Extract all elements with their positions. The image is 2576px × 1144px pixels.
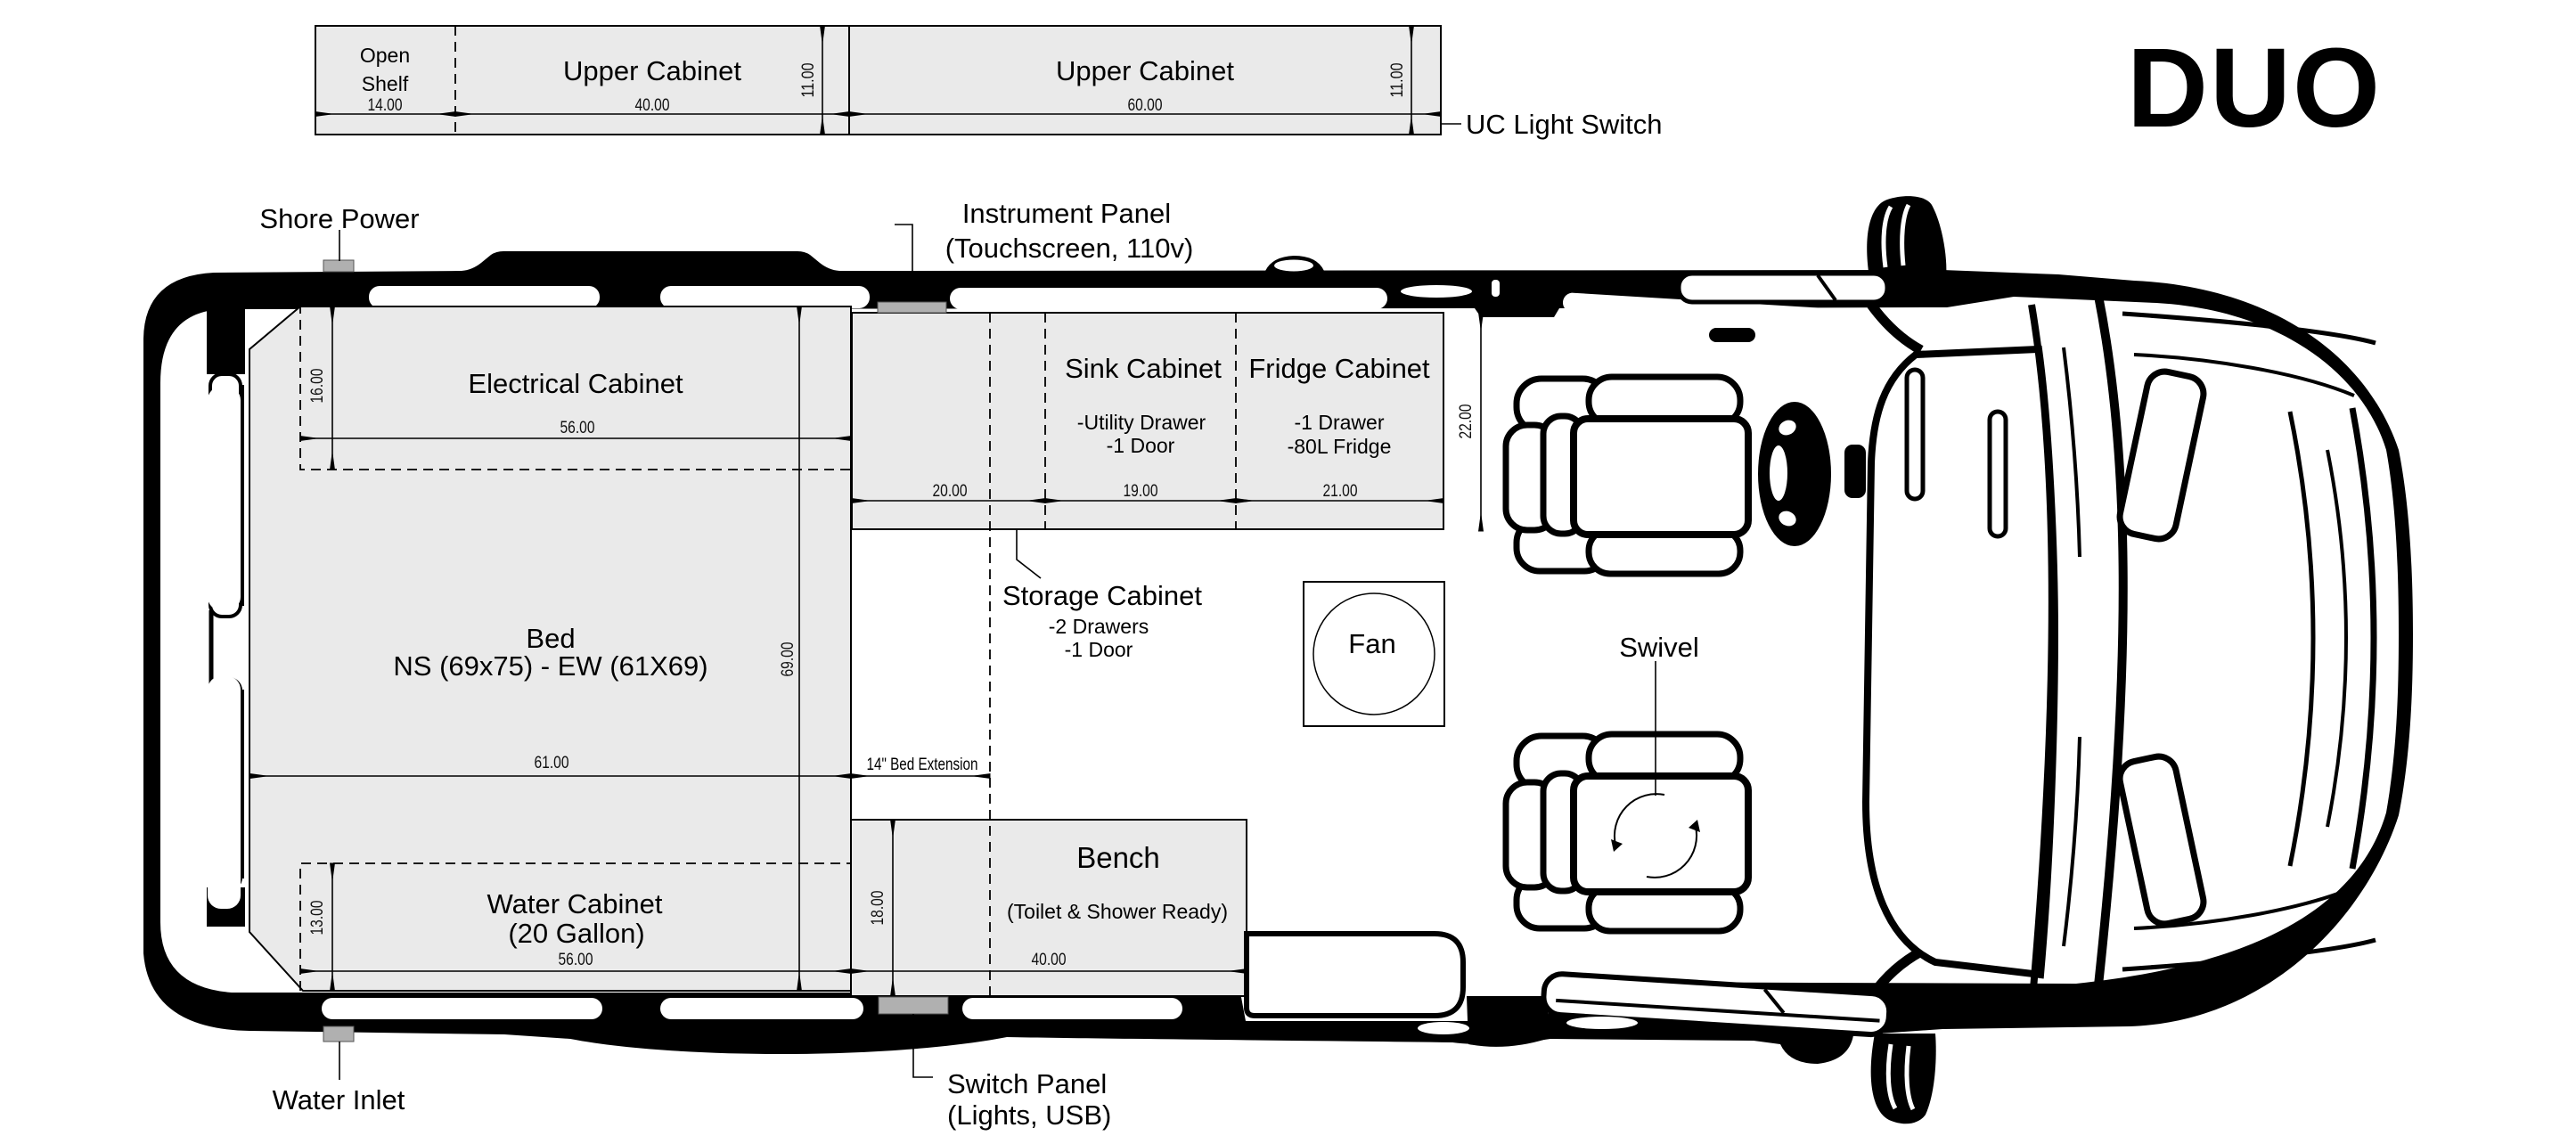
svg-text:(Toilet & Shower Ready): (Toilet & Shower Ready) <box>1007 900 1228 923</box>
svg-text:Bed: Bed <box>526 623 575 654</box>
svg-text:(Touchscreen, 110v): (Touchscreen, 110v) <box>945 233 1194 264</box>
svg-text:(Lights, USB): (Lights, USB) <box>947 1099 1111 1131</box>
svg-text:60.00: 60.00 <box>1128 96 1163 115</box>
svg-text:Upper Cabinet: Upper Cabinet <box>1056 55 1234 86</box>
svg-text:20.00: 20.00 <box>933 482 968 501</box>
svg-text:Water Cabinet: Water Cabinet <box>487 888 663 919</box>
svg-text:Instrument Panel: Instrument Panel <box>962 198 1171 229</box>
svg-text:Swivel: Swivel <box>1619 632 1699 663</box>
svg-text:Electrical Cabinet: Electrical Cabinet <box>468 368 683 399</box>
svg-text:13.00: 13.00 <box>308 901 327 936</box>
svg-text:-1 Door: -1 Door <box>1065 638 1133 661</box>
svg-text:(20 Gallon): (20 Gallon) <box>508 918 644 949</box>
svg-text:11.00: 11.00 <box>799 63 818 98</box>
svg-text:40.00: 40.00 <box>635 96 670 115</box>
svg-text:Sink Cabinet: Sink Cabinet <box>1065 353 1222 384</box>
svg-text:40.00: 40.00 <box>1032 951 1067 969</box>
svg-text:Storage Cabinet: Storage Cabinet <box>1002 580 1202 611</box>
svg-text:Fridge Cabinet: Fridge Cabinet <box>1248 353 1430 384</box>
svg-text:69.00: 69.00 <box>779 642 797 677</box>
svg-text:21.00: 21.00 <box>1323 482 1358 501</box>
svg-text:Water Inlet: Water Inlet <box>273 1084 405 1115</box>
svg-text:16.00: 16.00 <box>308 369 327 404</box>
svg-text:DUO: DUO <box>2127 25 2382 151</box>
svg-text:-Utility Drawer: -Utility Drawer <box>1077 411 1206 434</box>
svg-text:19.00: 19.00 <box>1124 482 1158 501</box>
svg-text:18.00: 18.00 <box>869 891 887 926</box>
svg-text:UC Light Switch: UC Light Switch <box>1466 109 1663 140</box>
svg-text:14" Bed Extension: 14" Bed Extension <box>867 756 978 774</box>
svg-text:-80L Fridge: -80L Fridge <box>1288 435 1392 458</box>
svg-text:11.00: 11.00 <box>1388 63 1407 98</box>
svg-text:Bench: Bench <box>1076 841 1160 874</box>
svg-text:Shore Power: Shore Power <box>259 203 419 234</box>
svg-text:-2 Drawers: -2 Drawers <box>1049 615 1149 638</box>
svg-text:Switch Panel: Switch Panel <box>947 1068 1107 1099</box>
svg-text:-1 Drawer: -1 Drawer <box>1295 411 1385 434</box>
svg-text:14.00: 14.00 <box>368 96 403 115</box>
svg-text:56.00: 56.00 <box>559 951 593 969</box>
svg-text:Shelf: Shelf <box>362 72 409 95</box>
svg-text:Fan: Fan <box>1348 628 1395 659</box>
svg-text:NS (69x75) - EW (61X69): NS (69x75) - EW (61X69) <box>393 650 707 682</box>
svg-text:22.00: 22.00 <box>1457 404 1476 439</box>
svg-text:Open: Open <box>360 44 410 67</box>
svg-text:56.00: 56.00 <box>560 419 595 437</box>
svg-text:61.00: 61.00 <box>535 754 569 772</box>
svg-text:Upper Cabinet: Upper Cabinet <box>563 55 741 86</box>
svg-text:-1 Door: -1 Door <box>1107 434 1175 457</box>
